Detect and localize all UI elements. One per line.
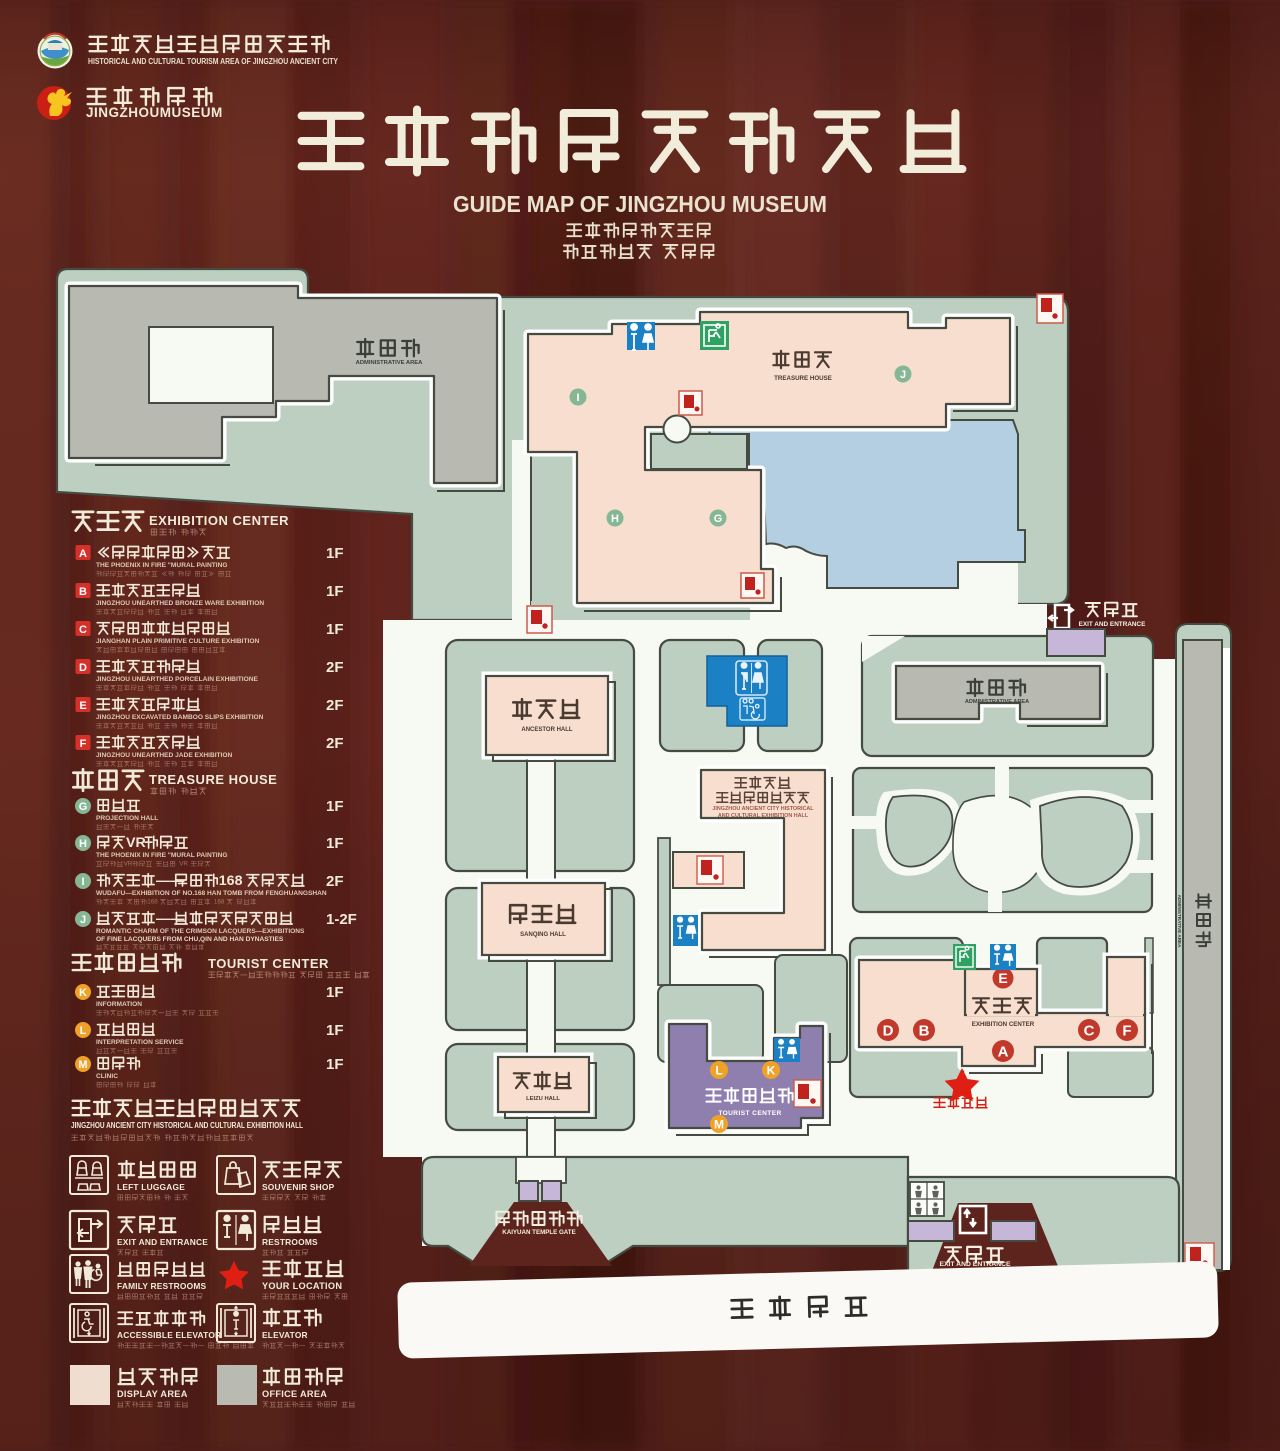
svg-text:——: —— — [156, 911, 185, 927]
svg-text:K: K — [767, 1063, 776, 1077]
svg-text:JINGZHOU UNEARTHED JADE EXHIBI: JINGZHOU UNEARTHED JADE EXHIBITION — [96, 752, 233, 759]
svg-text:1-2F: 1-2F — [326, 911, 357, 928]
svg-text:ROMANTIC CHARM OF THE CRIMSON: ROMANTIC CHARM OF THE CRIMSON LACQUERS—E… — [96, 928, 305, 935]
svg-text:E: E — [998, 970, 1007, 986]
svg-text:I: I — [576, 392, 579, 404]
svg-text:EXHIBITION CENTER: EXHIBITION CENTER — [972, 1021, 1035, 1028]
svg-text:CLINIC: CLINIC — [96, 1073, 118, 1080]
svg-text:OF FINE LACQUERS FROM CHU,QIN: OF FINE LACQUERS FROM CHU,QIN AND HAN DY… — [96, 936, 284, 943]
svg-text:F: F — [80, 738, 87, 750]
svg-text:1F: 1F — [326, 621, 344, 638]
svg-text:YOUR LOCATION: YOUR LOCATION — [262, 1281, 342, 1291]
svg-text:EXIT AND ENTRANCE: EXIT AND ENTRANCE — [117, 1237, 208, 1247]
svg-text:L: L — [80, 1025, 87, 1037]
svg-text:C: C — [1084, 1022, 1095, 1039]
svg-text:I: I — [81, 876, 84, 888]
svg-text:ADMINISTRATIVE AREA: ADMINISTRATIVE AREA — [1177, 895, 1182, 949]
svg-text:2F: 2F — [326, 735, 344, 752]
svg-text:L: L — [715, 1063, 722, 1077]
svg-text:EXIT AND ENTRANCE: EXIT AND ENTRANCE — [1079, 621, 1147, 628]
svg-text:AND CULTURAL EXHIBITION HALL: AND CULTURAL EXHIBITION HALL — [718, 813, 809, 819]
svg-text:SANQING HALL: SANQING HALL — [520, 932, 566, 938]
svg-text:A: A — [79, 548, 87, 560]
svg-text:JIANGHAN PLAIN PRIMITIVE CULTU: JIANGHAN PLAIN PRIMITIVE CULTURE EXHIBIT… — [96, 638, 260, 645]
svg-text:FAMILY RESTROOMS: FAMILY RESTROOMS — [117, 1281, 207, 1291]
svg-text:THE PHOENIX IN FIRE "MURAL PAI: THE PHOENIX IN FIRE "MURAL PAINTING — [96, 852, 227, 859]
svg-text:SOUVENIR SHOP: SOUVENIR SHOP — [262, 1182, 335, 1192]
svg-text:JINGZHOU UNEARTHED PORCELAIN E: JINGZHOU UNEARTHED PORCELAIN EXHIBITIONE — [96, 676, 259, 683]
svg-text:ANCESTOR HALL: ANCESTOR HALL — [521, 727, 573, 733]
svg-text:H: H — [611, 513, 619, 525]
svg-text:168: 168 — [214, 899, 225, 906]
svg-text:JINGZHOU ANCIENT CITY HISTORIC: JINGZHOU ANCIENT CITY HISTORICAL — [712, 806, 814, 812]
svg-text:JINGZHOU ANCIENT CITY HISTORIC: JINGZHOU ANCIENT CITY HISTORICAL AND CUL… — [71, 1121, 303, 1130]
svg-text:OFFICE AREA: OFFICE AREA — [262, 1389, 327, 1399]
svg-text:1F: 1F — [326, 583, 344, 600]
svg-text:PROJECTION HALL: PROJECTION HALL — [96, 815, 158, 822]
svg-text:TREASURE HOUSE: TREASURE HOUSE — [149, 772, 277, 787]
svg-text:ADMINISTRATIVE AREA: ADMINISTRATIVE AREA — [356, 360, 423, 366]
svg-text:K: K — [79, 987, 87, 999]
svg-text:168: 168 — [147, 899, 158, 906]
svg-text:JINGZHOU UNEARTHED BRONZE WARE: JINGZHOU UNEARTHED BRONZE WARE EXHIBITIO… — [96, 600, 264, 607]
svg-text:2F: 2F — [326, 873, 344, 890]
svg-text:WUDAFU—EXHIBITION OF NO.168 HA: WUDAFU—EXHIBITION OF NO.168 HAN TOMB FRO… — [96, 890, 327, 897]
svg-text:VR: VR — [124, 861, 133, 868]
svg-text:F: F — [1122, 1022, 1131, 1039]
svg-text:168: 168 — [219, 873, 243, 889]
svg-text:C: C — [79, 624, 87, 636]
svg-text:EXHIBITION CENTER: EXHIBITION CENTER — [149, 513, 289, 528]
svg-text:TREASURE HOUSE: TREASURE HOUSE — [774, 375, 832, 382]
svg-text:1F: 1F — [326, 798, 344, 815]
svg-text:J: J — [80, 914, 86, 926]
svg-text:M: M — [714, 1117, 724, 1131]
svg-text:1F: 1F — [326, 1022, 344, 1039]
svg-text:1F: 1F — [326, 545, 344, 562]
svg-text:H: H — [79, 838, 87, 850]
svg-text:LEIZU HALL: LEIZU HALL — [526, 1096, 560, 1102]
svg-text:HISTORICAL AND CULTURAL TOURIS: HISTORICAL AND CULTURAL TOURISM AREA OF … — [88, 57, 339, 66]
svg-text:GUIDE MAP OF JINGZHOU MUSEUM: GUIDE MAP OF JINGZHOU MUSEUM — [453, 191, 827, 217]
svg-text:D: D — [883, 1022, 894, 1039]
svg-text:G: G — [79, 801, 88, 813]
svg-text:G: G — [714, 513, 723, 525]
svg-text:INTERPRETATION SERVICE: INTERPRETATION SERVICE — [96, 1039, 184, 1046]
svg-text:2F: 2F — [326, 697, 344, 714]
svg-text:TOURIST CENTER: TOURIST CENTER — [208, 956, 329, 971]
svg-text:1F: 1F — [326, 984, 344, 1001]
svg-text:JINGZHOU EXCAVATED BAMBOO SLIP: JINGZHOU EXCAVATED BAMBOO SLIPS EXHIBITI… — [96, 714, 264, 721]
svg-text:B: B — [79, 586, 87, 598]
svg-text:INFORMATION: INFORMATION — [96, 1001, 142, 1008]
svg-text:VR: VR — [179, 861, 188, 868]
svg-text:ADMINISTRATIVE AREA: ADMINISTRATIVE AREA — [965, 699, 1029, 705]
svg-text:LEFT LUGGAGE: LEFT LUGGAGE — [117, 1182, 185, 1192]
svg-text:M: M — [78, 1059, 87, 1071]
svg-text:EXIT AND ENTRANCE: EXIT AND ENTRANCE — [939, 1261, 1011, 1268]
svg-text:——: —— — [156, 873, 185, 889]
svg-text:E: E — [79, 700, 86, 712]
svg-text:1F: 1F — [326, 1056, 344, 1073]
svg-text:THE PHOENIX IN FIRE "MURAL PAI: THE PHOENIX IN FIRE "MURAL PAINTING — [96, 562, 227, 569]
svg-text:J: J — [900, 369, 906, 381]
svg-text:RESTROOMS: RESTROOMS — [262, 1237, 318, 1247]
svg-text:JINGZHOUMUSEUM: JINGZHOUMUSEUM — [86, 105, 223, 120]
svg-text:D: D — [79, 662, 87, 674]
svg-text:A: A — [998, 1043, 1009, 1060]
svg-text:ACCESSIBLE ELEVATOR: ACCESSIBLE ELEVATOR — [117, 1330, 221, 1340]
svg-text:1F: 1F — [326, 835, 344, 852]
svg-text:KAIYUAN TEMPLE GATE: KAIYUAN TEMPLE GATE — [502, 1229, 575, 1236]
svg-text:ELEVATOR: ELEVATOR — [262, 1330, 308, 1340]
svg-text:2F: 2F — [326, 659, 344, 676]
svg-text:DISPLAY AREA: DISPLAY AREA — [117, 1389, 188, 1399]
svg-text:B: B — [919, 1022, 930, 1039]
svg-text:TOURIST CENTER: TOURIST CENTER — [718, 1110, 781, 1117]
svg-text:VR: VR — [126, 835, 146, 851]
